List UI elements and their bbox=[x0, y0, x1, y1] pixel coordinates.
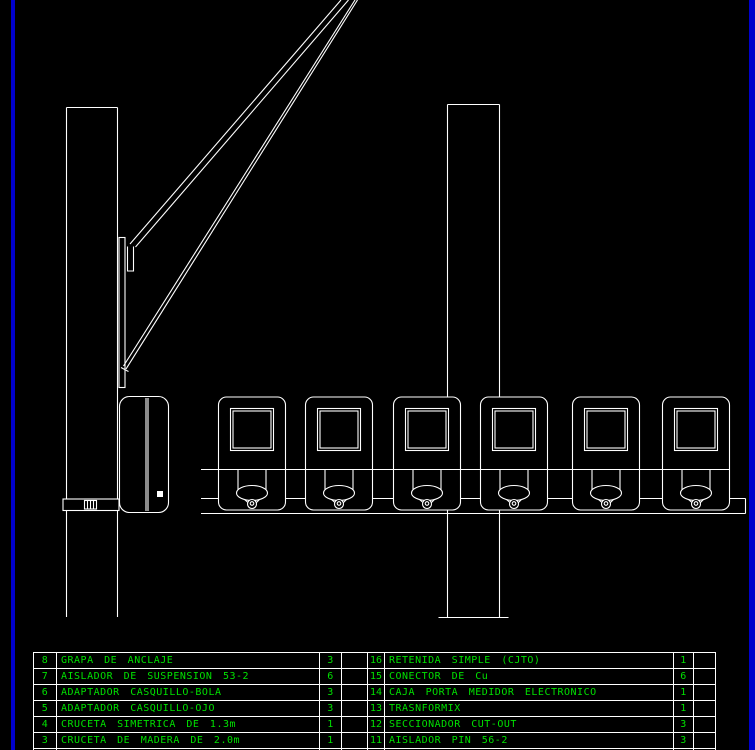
table-row: 11AISLADOR PIN 56-23 bbox=[368, 733, 716, 749]
guy-wire-clevis bbox=[128, 247, 134, 272]
item-description-cell: AISLADOR PIN 56-2 bbox=[385, 733, 674, 749]
item-number-cell: 14 bbox=[368, 685, 385, 701]
item-qty-cell: 1 bbox=[320, 733, 342, 749]
cad-drawing-canvas bbox=[0, 0, 755, 750]
item-number-cell: 12 bbox=[368, 717, 385, 733]
item-description-cell: ADAPTADOR CASQUILLO-BOLA bbox=[57, 685, 320, 701]
spacer-cell bbox=[342, 717, 368, 733]
spacer-cell bbox=[342, 653, 368, 669]
spacer-cell bbox=[694, 717, 716, 733]
spacer-cell bbox=[342, 733, 368, 749]
item-qty-cell: 6 bbox=[320, 669, 342, 685]
item-number-cell: 3 bbox=[34, 733, 57, 749]
item-description-cell: CRUCETA DE MADERA DE 2.0m bbox=[57, 733, 320, 749]
meter-front-2 bbox=[306, 397, 373, 510]
table-row: 6ADAPTADOR CASQUILLO-BOLA3 bbox=[34, 685, 369, 701]
table-row: 3CRUCETA DE MADERA DE 2.0m1 bbox=[34, 733, 369, 749]
item-number-cell: 4 bbox=[34, 717, 57, 733]
table-row: 13TRASNFORMIX1 bbox=[368, 701, 716, 717]
item-description-cell: CONECTOR DE Cu bbox=[385, 669, 674, 685]
table-row: 8GRAPA DE ANCLAJE3 bbox=[34, 653, 369, 669]
meter-latch bbox=[157, 491, 163, 497]
guy-wire-upper bbox=[128, 0, 349, 271]
mounting-bracket bbox=[63, 499, 119, 511]
table-row: 16RETENIDA SIMPLE (CJTO)1 bbox=[368, 653, 716, 669]
item-number-cell: 6 bbox=[34, 685, 57, 701]
item-description-cell: ADAPTADOR CASQUILLO-OJO bbox=[57, 701, 320, 717]
spacer-cell bbox=[694, 733, 716, 749]
item-description-cell: RETENIDA SIMPLE (CJTO) bbox=[385, 653, 674, 669]
item-description-cell: SECCIONADOR CUT-OUT bbox=[385, 717, 674, 733]
table-row: 7AISLADOR DE SUSPENSION 53-26 bbox=[34, 669, 369, 685]
item-description-cell: CRUCETA SIMETRICA DE 1.3m bbox=[57, 717, 320, 733]
meter-front-row bbox=[219, 397, 730, 510]
table-row: 14CAJA PORTA MEDIDOR ELECTRONICO1 bbox=[368, 685, 716, 701]
utility-pole-left bbox=[67, 108, 126, 618]
item-qty-cell: 1 bbox=[320, 717, 342, 733]
meter-front-6 bbox=[663, 397, 730, 510]
item-number-cell: 13 bbox=[368, 701, 385, 717]
item-qty-cell: 3 bbox=[320, 701, 342, 717]
item-description-cell: CAJA PORTA MEDIDOR ELECTRONICO bbox=[385, 685, 674, 701]
meter-front-3 bbox=[394, 397, 461, 510]
item-number-cell: 15 bbox=[368, 669, 385, 685]
spacer-cell bbox=[342, 669, 368, 685]
spacer-cell bbox=[694, 669, 716, 685]
item-qty-cell: 3 bbox=[674, 733, 694, 749]
table-row: 15CONECTOR DE Cu6 bbox=[368, 669, 716, 685]
item-number-cell: 8 bbox=[34, 653, 57, 669]
item-number-cell: 11 bbox=[368, 733, 385, 749]
spacer-cell bbox=[342, 685, 368, 701]
table-row: 4CRUCETA SIMETRICA DE 1.3m1 bbox=[34, 717, 369, 733]
spacer-cell bbox=[694, 685, 716, 701]
item-description-cell: GRAPA DE ANCLAJE bbox=[57, 653, 320, 669]
guy-wire-lower bbox=[121, 0, 358, 372]
meter-front-4 bbox=[481, 397, 548, 510]
table-row: 5ADAPTADOR CASQUILLO-OJO3 bbox=[34, 701, 369, 717]
item-qty-cell: 3 bbox=[674, 717, 694, 733]
item-number-cell: 5 bbox=[34, 701, 57, 717]
item-number-cell: 16 bbox=[368, 653, 385, 669]
item-qty-cell: 3 bbox=[320, 653, 342, 669]
spacer-cell bbox=[694, 653, 716, 669]
utility-pole-right bbox=[439, 105, 509, 618]
materials-table-left: 8GRAPA DE ANCLAJE37AISLADOR DE SUSPENSIO… bbox=[33, 652, 369, 750]
spacer-cell bbox=[694, 701, 716, 717]
item-qty-cell: 1 bbox=[674, 653, 694, 669]
spacer-cell bbox=[342, 701, 368, 717]
item-number-cell: 7 bbox=[34, 669, 57, 685]
cad-viewport: 8GRAPA DE ANCLAJE37AISLADOR DE SUSPENSIO… bbox=[0, 0, 755, 750]
item-description-cell: AISLADOR DE SUSPENSION 53-2 bbox=[57, 669, 320, 685]
materials-table-right: 16RETENIDA SIMPLE (CJTO)115CONECTOR DE C… bbox=[367, 652, 716, 750]
item-qty-cell: 3 bbox=[320, 685, 342, 701]
item-qty-cell: 6 bbox=[674, 669, 694, 685]
meter-front-5 bbox=[573, 397, 640, 510]
meter-side-view bbox=[120, 397, 169, 513]
table-row: 12SECCIONADOR CUT-OUT3 bbox=[368, 717, 716, 733]
item-qty-cell: 1 bbox=[674, 701, 694, 717]
item-qty-cell: 1 bbox=[674, 685, 694, 701]
meter-front-1 bbox=[219, 397, 286, 510]
item-description-cell: TRASNFORMIX bbox=[385, 701, 674, 717]
